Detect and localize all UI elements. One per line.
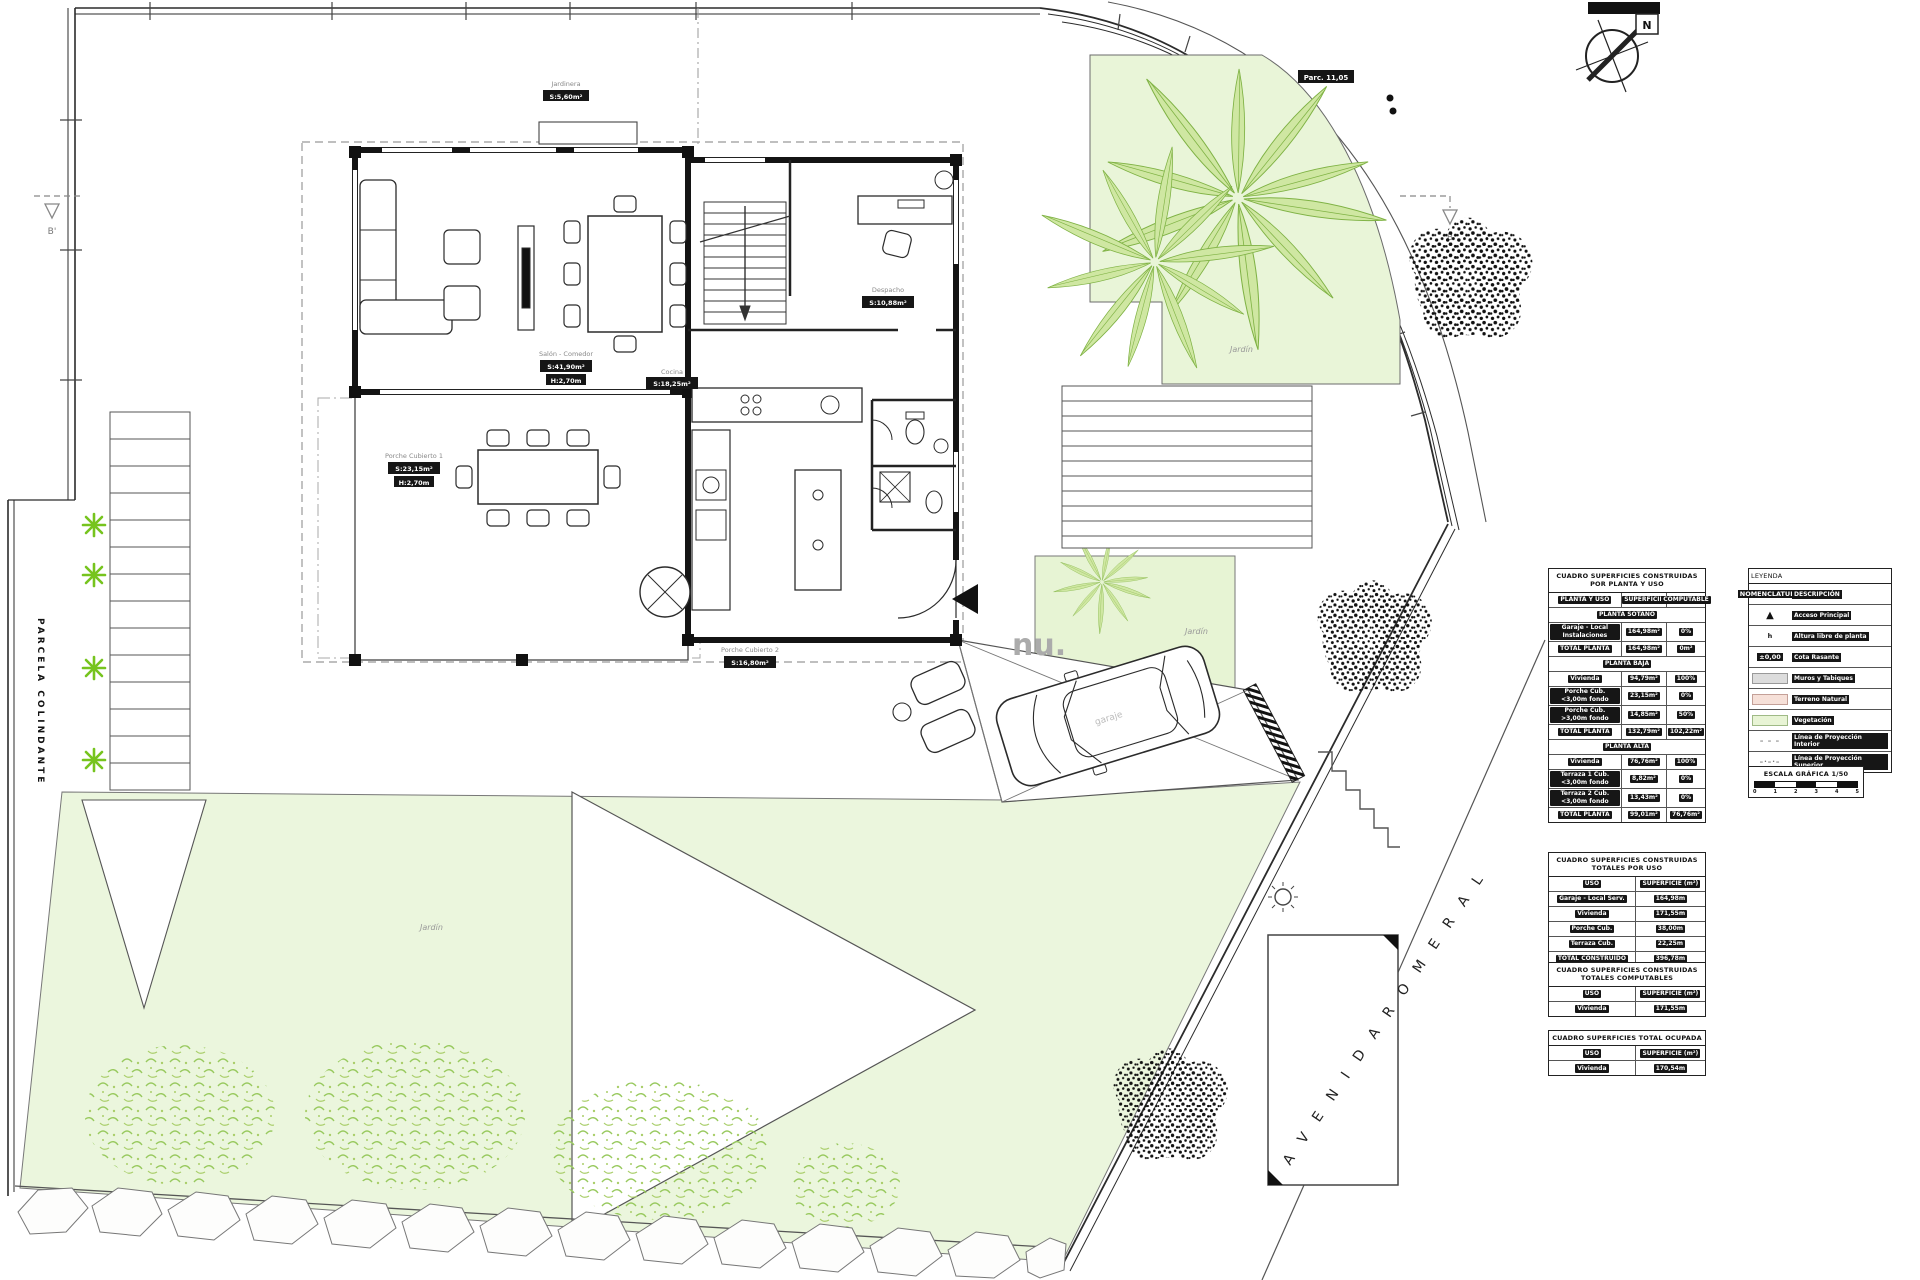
legend-symbol: [1752, 694, 1788, 705]
cell-superficie: 94,79m²: [1628, 675, 1660, 684]
garden-label-mid: Jardín: [1183, 627, 1208, 636]
bush-cluster: [305, 1040, 525, 1190]
north-label: N: [1642, 19, 1651, 32]
cell-computable: 0%: [1679, 775, 1693, 784]
table-row: Porche Cub. >3,00m fondo 14,85m² 50%: [1549, 705, 1705, 724]
table-title: CUADRO SUPERFICIES CONSTRUIDAS POR PLANT…: [1549, 569, 1705, 593]
table-row: Garaje - Local Instalaciones 164,98m² 0%: [1549, 622, 1705, 641]
legend-symbol: [1752, 673, 1788, 684]
table-row: Vivienda 171,55m: [1549, 1001, 1705, 1016]
legend-row: – – – Línea de Proyección Interior: [1749, 730, 1891, 751]
cell-superficie: SUPERFICIE (m²): [1640, 990, 1700, 999]
tv: [522, 248, 530, 308]
cell-planta-uso: Terraza 1 Cub. <3,00m fondo: [1550, 771, 1620, 787]
plant-pot: [935, 171, 953, 189]
cell-superficie: 170,54m: [1654, 1064, 1687, 1073]
cell-superficie: 99,01m²: [1628, 811, 1660, 820]
table-row: USO SUPERFICIE (m²): [1549, 987, 1705, 1001]
legend-label: DESCRIPCIÓN: [1792, 590, 1842, 599]
table-row: Garaje - Local Serv. 164,98m: [1549, 891, 1705, 906]
armchair: [444, 286, 480, 320]
table-computables: CUADRO SUPERFICIES CONSTRUIDAS TOTALES C…: [1548, 962, 1706, 1017]
tree: [1409, 218, 1532, 338]
legend-symbol: h: [1752, 631, 1788, 642]
cell-computable: 0m²: [1677, 645, 1694, 654]
tree: [1317, 580, 1431, 692]
toilet: [926, 491, 942, 513]
cell-superficie: 164,98m²: [1626, 645, 1662, 654]
legend-row: Terreno Natural: [1749, 688, 1891, 709]
svg-text:S:18,25m²: S:18,25m²: [653, 380, 691, 388]
svg-text:B': B': [48, 227, 57, 237]
scale-ticks: 012345: [1749, 789, 1863, 797]
cell-superficie: 22,25m: [1656, 940, 1685, 949]
cell-planta-uso: TOTAL PLANTA: [1558, 811, 1612, 820]
cell-superficie: 14,85m²: [1628, 711, 1660, 720]
planter-box: [539, 122, 637, 144]
cell-uso: Porche Cub.: [1570, 925, 1615, 934]
table-row: TOTAL PLANTA 99,01m² 76,76m²: [1549, 807, 1705, 822]
legend-row: NOMENCLATURA DESCRIPCIÓN: [1749, 584, 1891, 604]
cell-uso: Vivienda: [1575, 910, 1608, 919]
svg-text:H:2,70m: H:2,70m: [551, 377, 582, 385]
svg-text:S:41,90m²: S:41,90m²: [547, 363, 585, 371]
boundary-post: [1390, 108, 1397, 115]
svg-text:Parc. 11,05: Parc. 11,05: [1304, 74, 1349, 82]
table-ocupada: CUADRO SUPERFICIES TOTAL OCUPADA USO SUP…: [1548, 1030, 1706, 1076]
table-row: Vivienda 170,54m: [1549, 1060, 1705, 1075]
cell-superficie: 38,00m: [1656, 925, 1685, 934]
cell-superficie: SUPERFICIE (m²): [1640, 1049, 1700, 1058]
cell-superficie: 132,79m²: [1626, 728, 1662, 737]
tree: [1113, 1048, 1227, 1160]
exterior-stairs-left: [110, 412, 190, 790]
legend-label: Muros y Tabiques: [1792, 674, 1855, 683]
cell-planta-uso: TOTAL PLANTA: [1558, 645, 1612, 654]
legend-row: ±0,00 Cota Rasante: [1749, 646, 1891, 667]
curb-label: Parc. 11,05: [1298, 70, 1354, 83]
table-row: Porche Cub. <3,00m fondo 23,15m² 0%: [1549, 686, 1705, 705]
cell-superficie: 76,76m²: [1628, 758, 1660, 767]
table-surfaces-by-floor: CUADRO SUPERFICIES CONSTRUIDAS POR PLANT…: [1548, 568, 1706, 823]
cell-superficie: SUPERFICIE (m²): [1640, 880, 1700, 889]
legend-label: Altura libre de planta: [1792, 632, 1869, 641]
bush-cluster: [790, 1143, 900, 1227]
cell-uso: Vivienda: [1575, 1064, 1608, 1073]
svg-text:Jardinera: Jardinera: [550, 80, 580, 88]
cell-computable: 0%: [1679, 628, 1693, 637]
cell-planta-uso: PLANTA ALTA: [1603, 743, 1651, 752]
legend-row: Muros y Tabiques: [1749, 667, 1891, 688]
cell-uso: Terraza Cub.: [1569, 940, 1615, 949]
cell-computable: COMPUTABLE: [1661, 596, 1711, 605]
table-row: PLANTA ALTA: [1549, 739, 1705, 754]
legend-symbol: – – –: [1752, 736, 1788, 747]
armchair: [444, 230, 480, 264]
porch-slab: [355, 392, 688, 660]
legend-title: LEYENDA: [1749, 569, 1891, 584]
watermark: nu.: [1012, 628, 1066, 663]
monitor: [898, 200, 924, 208]
graphic-scale: ESCALA GRÁFICA 1/50 012345: [1748, 766, 1864, 798]
scale-title: ESCALA GRÁFICA 1/50: [1749, 767, 1863, 778]
cell-superficie: 171,55m: [1654, 1005, 1687, 1014]
svg-text:S:5,60m²: S:5,60m²: [550, 93, 583, 101]
cell-superficie: 23,15m²: [1628, 692, 1660, 701]
cell-planta-uso: PLANTA BAJA: [1603, 660, 1651, 669]
site-plan-sheet: Parc. 11,05 B' B Jardín Jardín Jardín: [0, 0, 1920, 1280]
round-table: [640, 567, 690, 617]
bush-cluster: [550, 1080, 770, 1220]
svg-text:Porche Cubierto 2: Porche Cubierto 2: [721, 646, 779, 654]
legend-label: Terreno Natural: [1792, 695, 1849, 704]
sofa: [360, 300, 452, 334]
cell-computable: 100%: [1675, 675, 1698, 684]
legend: LEYENDA NOMENCLATURA DESCRIPCIÓN ▲ Acces…: [1748, 568, 1892, 773]
svg-text:Salón - Comedor: Salón - Comedor: [539, 350, 593, 358]
cell-computable: 100%: [1675, 758, 1698, 767]
cell-superficie: 164,98m: [1654, 895, 1687, 904]
cell-superficie: 8,82m²: [1630, 775, 1658, 784]
cell-planta-uso: Porche Cub. >3,00m fondo: [1550, 707, 1620, 723]
svg-text:S:16,80m²: S:16,80m²: [731, 659, 769, 667]
table-row: Terraza 2 Cub. <3,00m fondo 13,43m² 0%: [1549, 788, 1705, 807]
garden-label-top: Jardín: [1228, 345, 1253, 354]
svg-text:S:10,88m²: S:10,88m²: [869, 299, 907, 307]
cell-planta-uso: Garaje - Local Instalaciones: [1550, 624, 1620, 640]
legend-label: Línea de Proyección Interior: [1792, 733, 1888, 749]
kitchen-island: [795, 470, 841, 590]
cell-superficie: 164,98m²: [1626, 628, 1662, 637]
legend-symbol: ▲: [1752, 610, 1788, 621]
legend-label: Acceso Principal: [1792, 611, 1851, 620]
table-row: USO SUPERFICIE (m²): [1549, 1046, 1705, 1060]
table-row: Terraza 1 Cub. <3,00m fondo 8,82m² 0%: [1549, 769, 1705, 788]
cell-computable: 0%: [1679, 692, 1693, 701]
table-row: TOTAL PLANTA 132,79m² 102,22m²: [1549, 724, 1705, 739]
cell-computable: 76,76m²: [1670, 811, 1702, 820]
table-row: TOTAL PLANTA 164,98m² 0m²: [1549, 641, 1705, 656]
table-row: USO SUPERFICIE (m²): [1549, 877, 1705, 891]
cell-planta-uso: PLANTA Y USO: [1558, 596, 1611, 605]
table-title: CUADRO SUPERFICIES CONSTRUIDAS TOTALES P…: [1549, 853, 1705, 877]
cell-uso: USO: [1583, 1049, 1601, 1058]
svg-text:Porche Cubierto 1: Porche Cubierto 1: [385, 452, 443, 460]
cell-planta-uso: PLANTA SÓTANO: [1597, 611, 1657, 620]
label-porche2: Porche Cubierto 2 S:16,80m²: [721, 646, 779, 668]
table-row: PLANTA SÓTANO: [1549, 607, 1705, 622]
cell-planta-uso: Porche Cub. <3,00m fondo: [1550, 688, 1620, 704]
legend-label: Cota Rasante: [1792, 653, 1841, 662]
cell-computable: 0%: [1679, 794, 1693, 803]
dishwasher: [696, 510, 726, 540]
table-row: Terraza Cub. 22,25m: [1549, 936, 1705, 951]
boundary-post: [1387, 95, 1394, 102]
label-salon: Salón - Comedor S:41,90m² H:2,70m: [539, 350, 593, 385]
cell-superficie: 171,55m: [1654, 910, 1687, 919]
cell-superficie: SUPERFICIE: [1622, 596, 1665, 605]
star-plant: [83, 657, 105, 679]
toilet: [906, 420, 924, 444]
cell-superficie: 13,43m²: [1628, 794, 1660, 803]
exterior-stairs-right: [1062, 386, 1312, 548]
star-plant: [83, 514, 105, 536]
star-plant: [83, 564, 105, 586]
table-row: Porche Cub. 38,00m: [1549, 921, 1705, 936]
table-row: Vivienda 76,76m² 100%: [1549, 754, 1705, 769]
cell-uso: Garaje - Local Serv.: [1557, 895, 1627, 904]
title-strip: [1588, 2, 1660, 14]
garden-label-lawn: Jardín: [418, 923, 443, 932]
cell-planta-uso: TOTAL PLANTA: [1558, 728, 1612, 737]
table-row: PLANTA BAJA: [1549, 656, 1705, 671]
cell-planta-uso: Vivienda: [1568, 758, 1601, 767]
table-title: CUADRO SUPERFICIES TOTAL OCUPADA: [1549, 1031, 1705, 1046]
legend-symbol: [1752, 715, 1788, 726]
legend-row: Vegetación: [1749, 709, 1891, 730]
cell-planta-uso: Terraza 2 Cub. <3,00m fondo: [1550, 790, 1620, 806]
table-row: Vivienda 171,55m: [1549, 906, 1705, 921]
cell-uso: Vivienda: [1575, 1005, 1608, 1014]
washbasin: [934, 439, 948, 453]
cell-uso: USO: [1583, 990, 1601, 999]
legend-label: Vegetación: [1792, 716, 1834, 725]
svg-text:H:2,70m: H:2,70m: [399, 479, 430, 487]
star-plant: [83, 749, 105, 771]
cell-computable: 50%: [1677, 711, 1695, 720]
scale-bar: [1754, 781, 1858, 788]
sink: [821, 396, 839, 414]
legend-symbol: NOMENCLATURA: [1752, 589, 1788, 600]
cell-planta-uso: Vivienda: [1568, 675, 1601, 684]
svg-text:Cocina: Cocina: [661, 368, 683, 376]
bush-cluster: [85, 1045, 275, 1185]
table-totals-by-use: CUADRO SUPERFICIES CONSTRUIDAS TOTALES P…: [1548, 852, 1706, 967]
table-title: CUADRO SUPERFICIES CONSTRUIDAS TOTALES C…: [1549, 963, 1705, 987]
legend-row: h Altura libre de planta: [1749, 625, 1891, 646]
cell-uso: USO: [1583, 880, 1601, 889]
legend-symbol: ±0,00: [1752, 652, 1788, 663]
legend-row: ▲ Acceso Principal: [1749, 604, 1891, 625]
table-row: Vivienda 94,79m² 100%: [1549, 671, 1705, 686]
neighbour-parcel-label: PARCELA COLINDANTE: [35, 618, 45, 785]
cell-computable: 102,22m²: [1668, 728, 1704, 737]
svg-text:Despacho: Despacho: [872, 286, 904, 294]
svg-text:S:23,15m²: S:23,15m²: [395, 465, 433, 473]
table-row: PLANTA Y USO SUPERFICIE COMPUTABLE: [1549, 593, 1705, 607]
